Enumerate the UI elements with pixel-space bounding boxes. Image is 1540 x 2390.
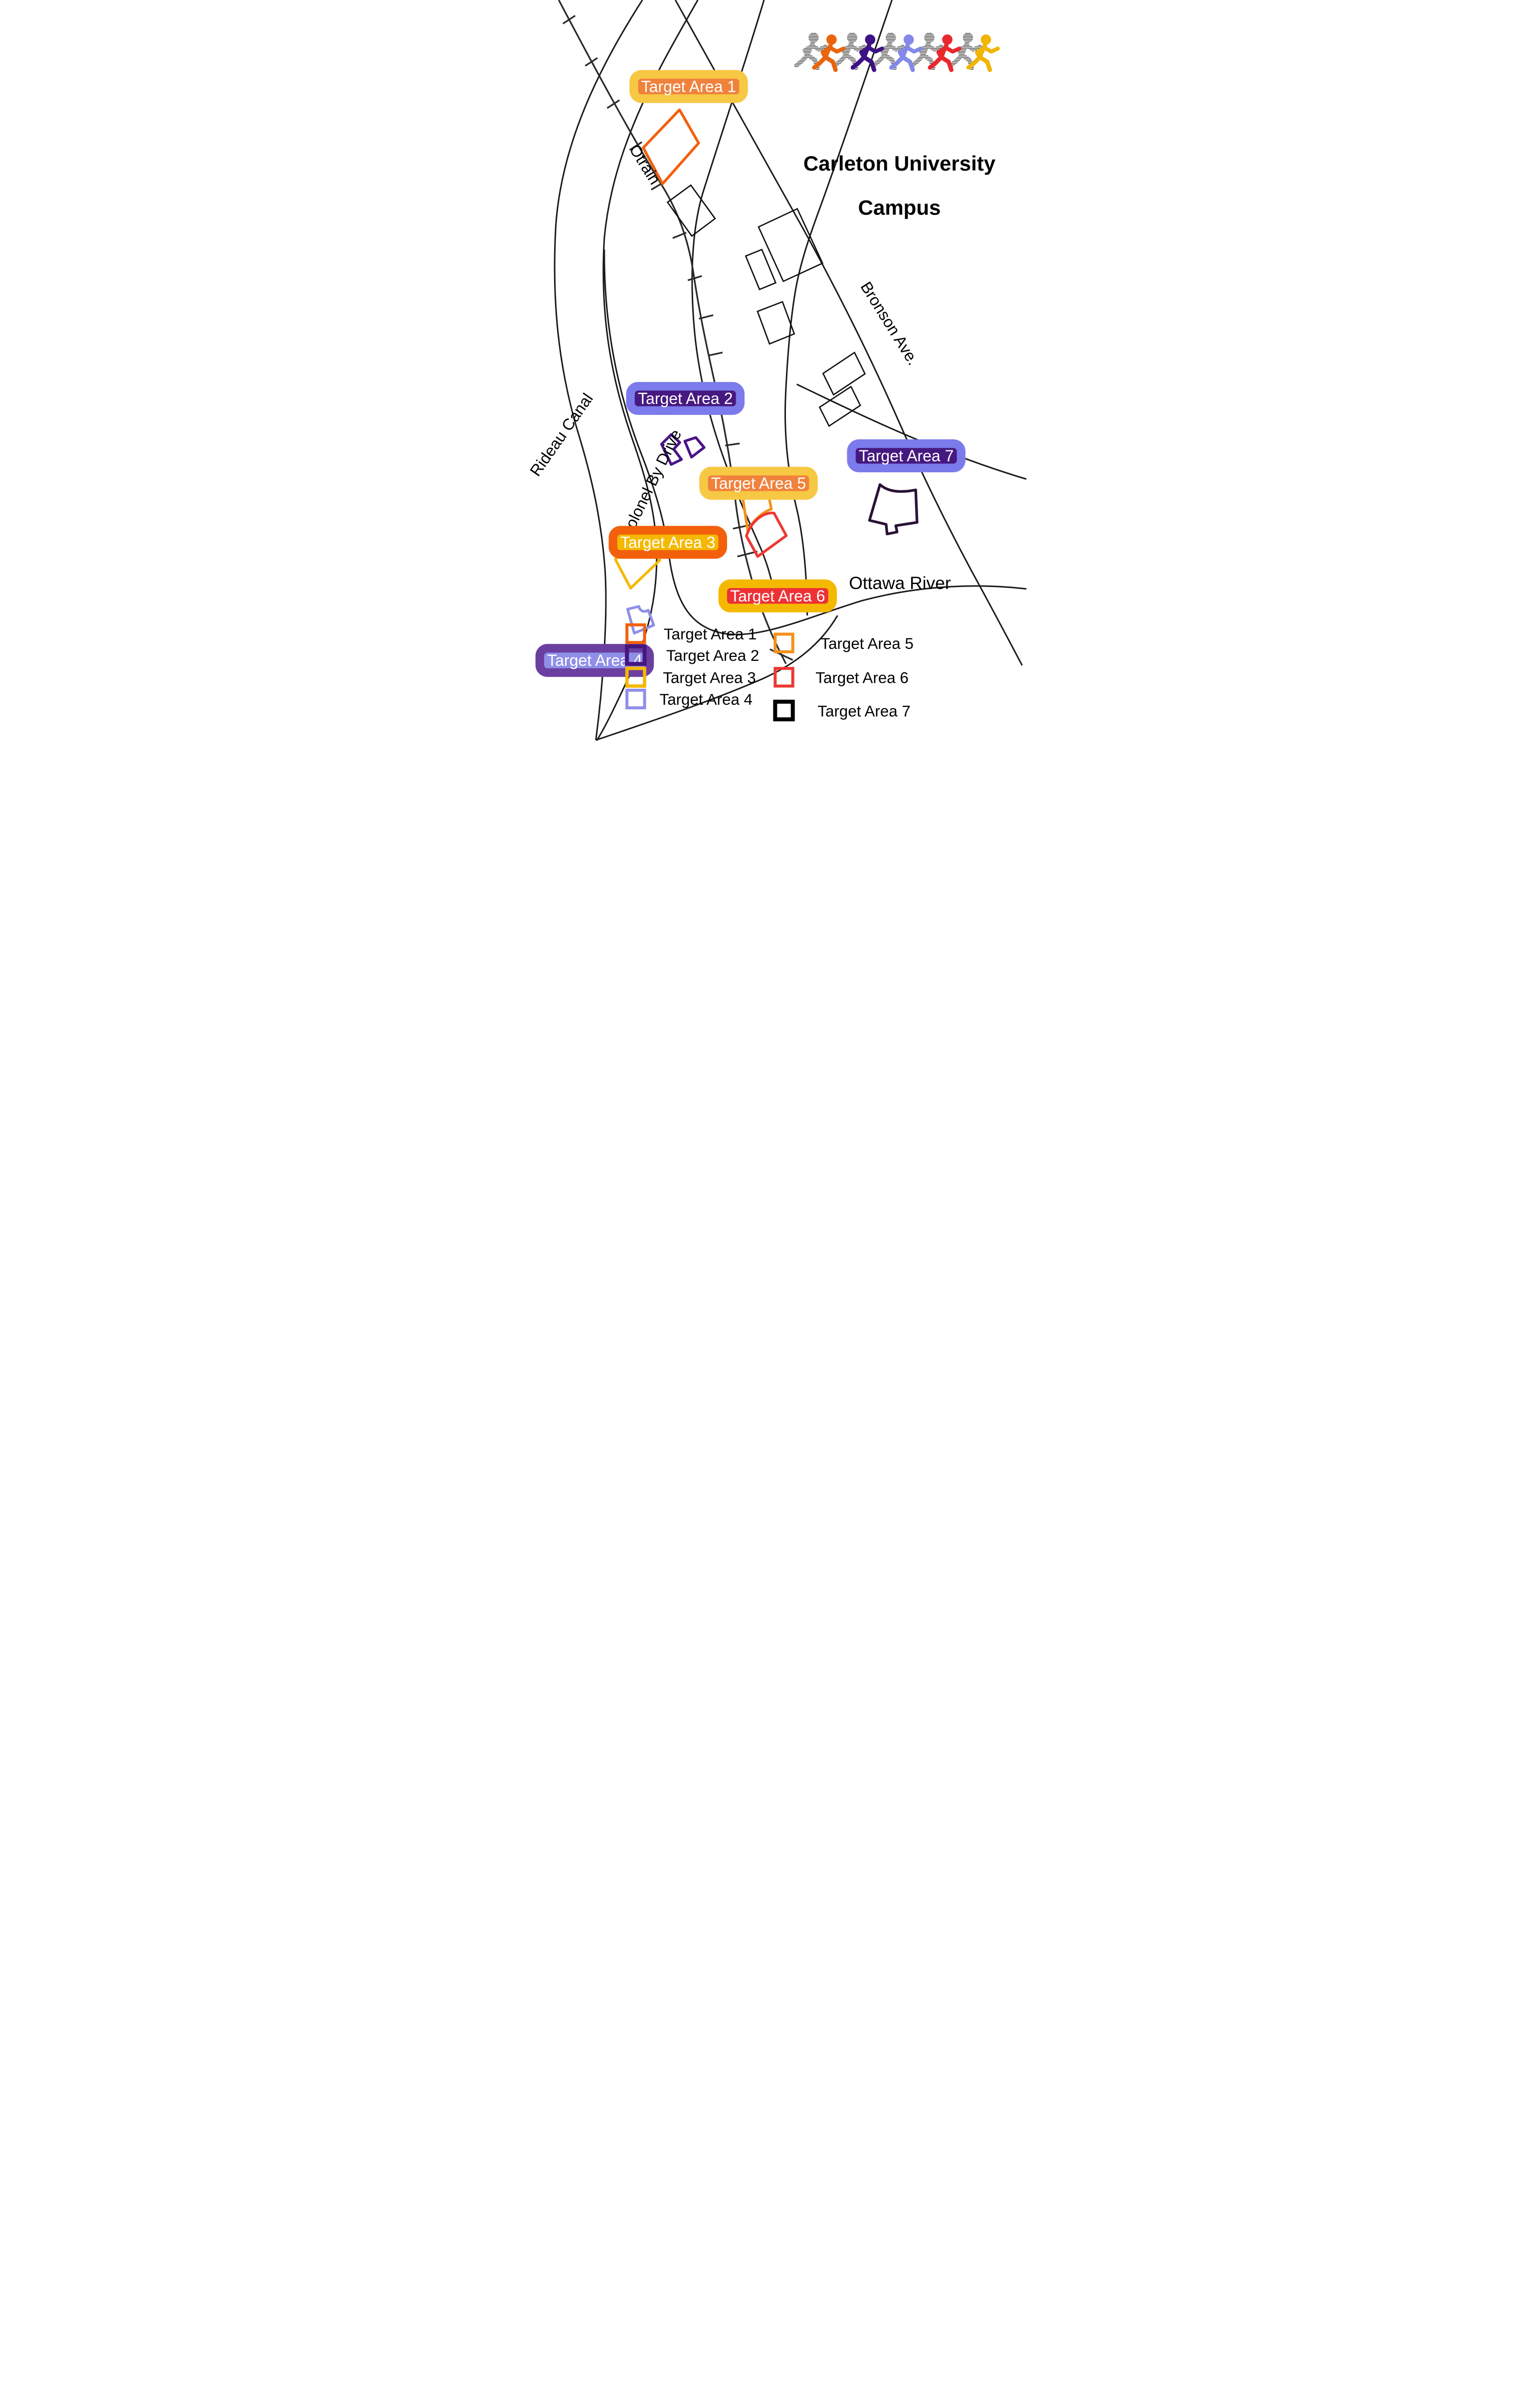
legend-label-6: Target Area 6: [815, 669, 908, 687]
legend-label-1: Target Area 1: [664, 625, 757, 643]
legend-item-6[interactable]: Target Area 6: [775, 668, 909, 686]
legend-swatch-4[interactable]: [627, 690, 644, 708]
ottawa-river-label: Ottawa River: [849, 574, 951, 593]
legend-item-5[interactable]: Target Area 5: [775, 634, 914, 652]
legend-item-7[interactable]: Target Area 7: [775, 702, 911, 720]
legend: Target Area 1Target Area 2Target Area 3T…: [627, 625, 914, 720]
badge-ta5[interactable]: Target Area 5: [704, 471, 813, 496]
running-figures-logo: [796, 32, 998, 70]
rideau-canal-west-bank: [555, 0, 642, 740]
badge-ta2[interactable]: Target Area 2: [630, 386, 740, 410]
legend-label-5: Target Area 5: [820, 635, 913, 652]
target-area-6-shape[interactable]: [747, 513, 786, 557]
runner-icon: [968, 34, 998, 70]
badge-ta1[interactable]: Target Area 1: [634, 74, 744, 99]
bronson-ave-label: Bronson Ave.: [857, 278, 923, 368]
badge-ta6[interactable]: Target Area 6: [723, 584, 832, 608]
legend-label-3: Target Area 3: [663, 669, 756, 687]
building-footprint: [823, 353, 865, 395]
colonel-by-drive-label: Colonel By Drive: [616, 426, 685, 541]
campus-map: Otrain Bronson Ave. Rideau Canal Colonel…: [513, 0, 1027, 797]
title-line-2: Campus: [858, 196, 941, 219]
campus-map-page: Otrain Bronson Ave. Rideau Canal Colonel…: [513, 0, 1027, 797]
building-footprint: [819, 387, 860, 426]
legend-label-7: Target Area 7: [817, 702, 910, 720]
title-line-1: Carleton University: [803, 152, 996, 175]
badge-ta5-label: Target Area 5: [711, 474, 806, 492]
target-area-2-shape[interactable]: [685, 437, 704, 457]
legend-swatch-7[interactable]: [775, 702, 792, 719]
otrain-label: Otrain: [626, 141, 664, 188]
building-footprint: [759, 209, 822, 281]
rideau-canal-label: Rideau Canal: [526, 390, 596, 480]
road-network: [555, 0, 1026, 741]
badge-ta1-label: Target Area 1: [641, 77, 736, 95]
legend-label-4: Target Area 4: [660, 691, 753, 708]
badge-ta7-label: Target Area 7: [859, 447, 954, 465]
legend-item-4[interactable]: Target Area 4: [627, 690, 753, 708]
target-area-7-shape[interactable]: [869, 485, 917, 534]
badge-ta6-label: Target Area 6: [730, 587, 825, 605]
badge-ta3-label: Target Area 3: [620, 533, 715, 551]
badge-ta7[interactable]: Target Area 7: [851, 444, 961, 468]
legend-label-2: Target Area 2: [666, 647, 759, 664]
badge-ta2-label: Target Area 2: [638, 390, 733, 407]
page-title: Carleton University Campus: [803, 152, 996, 219]
badge-ta3[interactable]: Target Area 3: [613, 530, 723, 555]
